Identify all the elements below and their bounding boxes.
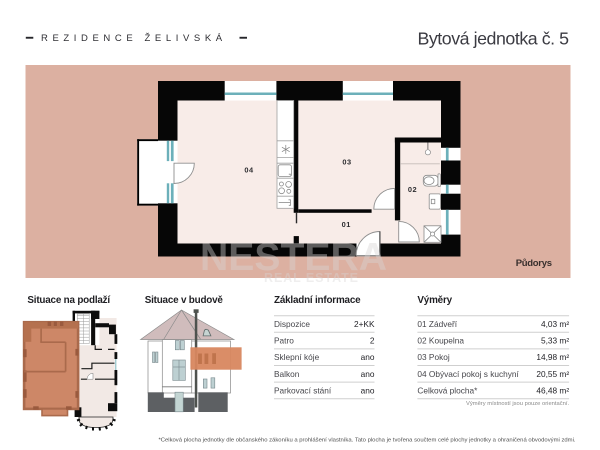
svg-text:14,98 m²: 14,98 m² bbox=[536, 352, 569, 362]
svg-text:Bytová jednotka č. 5: Bytová jednotka č. 5 bbox=[417, 29, 569, 49]
svg-text:Parkovací stání: Parkovací stání bbox=[274, 385, 332, 395]
svg-text:Výměry místností jsou pouze or: Výměry místností jsou pouze orientační. bbox=[466, 401, 569, 407]
svg-text:01: 01 bbox=[342, 220, 351, 229]
svg-text:*Celková plocha jednotky dle o: *Celková plocha jednotky dle občanského … bbox=[158, 438, 575, 444]
svg-text:REZIDENCE ŽELIVSKÁ: REZIDENCE ŽELIVSKÁ bbox=[41, 33, 227, 44]
svg-text:01 Zádveří: 01 Zádveří bbox=[417, 319, 457, 329]
svg-text:03: 03 bbox=[342, 158, 351, 167]
svg-text:4,03 m²: 4,03 m² bbox=[541, 319, 569, 329]
svg-text:Situace v budově: Situace v budově bbox=[145, 295, 224, 306]
svg-text:Dispozice: Dispozice bbox=[274, 319, 310, 329]
svg-text:2: 2 bbox=[370, 336, 375, 346]
svg-text:Situace na podlaží: Situace na podlaží bbox=[27, 295, 111, 306]
svg-text:Celková plocha*: Celková plocha* bbox=[417, 385, 478, 395]
svg-text:Patro: Patro bbox=[274, 336, 294, 346]
svg-text:Půdorys: Půdorys bbox=[516, 258, 552, 269]
svg-text:Sklepní kóje: Sklepní kóje bbox=[274, 352, 320, 362]
svg-text:04 Obývací pokoj s kuchyní: 04 Obývací pokoj s kuchyní bbox=[417, 369, 519, 379]
svg-text:20,55 m²: 20,55 m² bbox=[536, 369, 569, 379]
svg-text:04: 04 bbox=[244, 166, 254, 175]
svg-text:REAL ESTATE: REAL ESTATE bbox=[264, 271, 358, 285]
svg-text:5,33 m²: 5,33 m² bbox=[541, 336, 569, 346]
svg-text:Základní informace: Základní informace bbox=[274, 295, 361, 306]
svg-text:03 Pokoj: 03 Pokoj bbox=[417, 352, 449, 362]
svg-text:ano: ano bbox=[361, 352, 375, 362]
svg-text:Výměry: Výměry bbox=[417, 295, 452, 306]
svg-text:2+KK: 2+KK bbox=[354, 319, 375, 329]
svg-text:ano: ano bbox=[361, 385, 375, 395]
svg-text:02: 02 bbox=[408, 185, 417, 194]
svg-text:46,48 m²: 46,48 m² bbox=[536, 385, 569, 395]
svg-text:ano: ano bbox=[361, 369, 375, 379]
svg-text:Balkon: Balkon bbox=[274, 369, 300, 379]
svg-text:02 Koupelna: 02 Koupelna bbox=[417, 336, 464, 346]
